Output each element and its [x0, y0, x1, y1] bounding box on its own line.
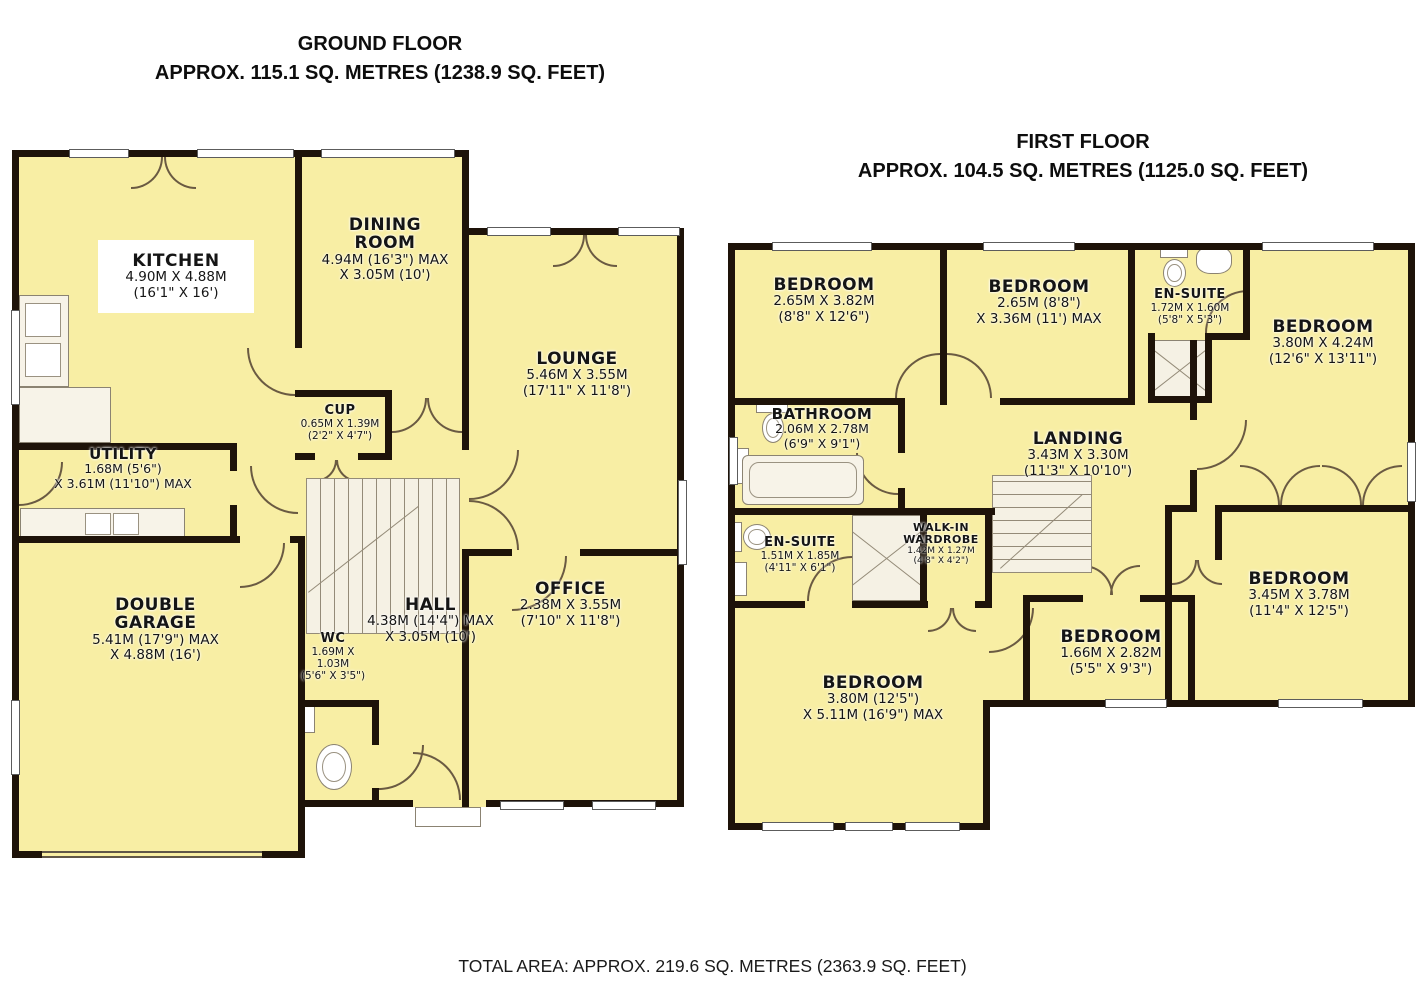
window: [197, 149, 294, 158]
wall: [298, 800, 413, 807]
ground-floor-area: APPROX. 115.1 SQ. METRES (1238.9 SQ. FEE…: [95, 59, 665, 88]
room-dim-metric: 1.68M (5'6"): [84, 462, 161, 476]
room-name: BEDROOM: [822, 674, 923, 692]
room-dim-metric: 4.38M (14'4") MAX: [367, 614, 494, 630]
wall: [12, 536, 240, 543]
utility-counter: [20, 508, 185, 538]
wall: [852, 601, 928, 608]
window: [762, 822, 834, 831]
window: [69, 149, 129, 158]
window: [1278, 699, 1363, 708]
room-dim-imperial: X 3.61M (11'10") MAX: [54, 477, 192, 491]
room-dim-imperial: (4'8" X 4'2"): [913, 556, 968, 566]
room-dim-imperial: (8'8" X 12'6"): [778, 310, 869, 326]
room-name: OFFICE: [535, 580, 606, 598]
wall: [290, 536, 305, 543]
room-label-landing: LANDING 3.43M X 3.30M (11'3" X 10'10"): [983, 430, 1173, 479]
garage-door: [42, 856, 262, 858]
wall: [295, 390, 392, 397]
first-floor-area: APPROX. 104.5 SQ. METRES (1125.0 SQ. FEE…: [798, 157, 1368, 186]
room-dim-imperial: (11'3" X 10'10"): [1024, 464, 1132, 480]
room-label-bedroom-top-middle: BEDROOM 2.65M (8'8") X 3.36M (11') MAX: [948, 278, 1130, 327]
wall: [1148, 396, 1212, 403]
room-label-bedroom-bottom-left: BEDROOM 3.80M (12'5") X 5.11M (16'9") MA…: [768, 674, 978, 723]
room-label-office: OFFICE 2.38M X 3.55M (7'10" X 11'8"): [478, 580, 663, 629]
room-label-cup: CUP 0.65M X 1.39M (2'2" X 4'7"): [300, 404, 380, 442]
room-label-bedroom-bottom-right: BEDROOM 3.45M X 3.78M (11'4" X 12'5"): [1198, 570, 1400, 619]
window: [845, 822, 893, 831]
wall: [728, 243, 735, 830]
wall: [1205, 333, 1212, 403]
room-label-walk-in-wardrobe: WALK-IN WARDROBE 1.42M X 1.27M (4'8" X 4…: [899, 522, 983, 566]
room-label-double-garage: DOUBLE GARAGE 5.41M (17'9") MAX X 4.88M …: [58, 596, 253, 664]
room-label-utility: UTILITY 1.68M (5'6") X 3.61M (11'10") MA…: [28, 446, 218, 491]
kitchen-sink: [19, 295, 69, 387]
wall: [298, 536, 305, 858]
window: [1407, 442, 1416, 502]
kitchen-counter: [19, 387, 111, 443]
room-dim-imperial: (4'11" X 6'1"): [765, 562, 836, 574]
wall: [735, 508, 995, 515]
room-name: WALK-IN WARDROBE: [903, 522, 978, 546]
room-name: EN-SUITE: [764, 536, 836, 550]
wall: [1148, 333, 1155, 403]
room-dim-imperial: (16'1" X 16'): [134, 286, 219, 302]
room-name: UTILITY: [89, 446, 157, 462]
wall: [372, 700, 379, 745]
room-name: WC: [321, 632, 346, 646]
room-dim-imperial: (5'8" X 5'3"): [1158, 314, 1222, 326]
total-area-text: TOTAL AREA: APPROX. 219.6 SQ. METRES (23…: [0, 956, 1425, 977]
room-name: BEDROOM: [1248, 570, 1349, 588]
first-floor-title-block: FIRST FLOOR APPROX. 104.5 SQ. METRES (11…: [798, 128, 1368, 186]
window: [983, 242, 1075, 251]
wall: [230, 443, 237, 471]
room-label-bedroom-bottom-middle: BEDROOM 1.66M X 2.82M (5'5" X 9'3"): [1030, 628, 1192, 677]
window: [487, 227, 551, 236]
room-dim-imperial: X 3.05M (10'): [385, 630, 476, 646]
window: [905, 822, 960, 831]
room-dim-metric: 3.43M X 3.30M: [1027, 448, 1128, 464]
window: [500, 801, 564, 810]
window: [772, 242, 872, 251]
room-dim-metric: 1.42M X 1.27M: [907, 546, 975, 556]
room-name: BEDROOM: [773, 276, 874, 294]
room-name: LOUNGE: [536, 350, 617, 368]
ground-floor-title: GROUND FLOOR: [95, 30, 665, 59]
room-dim-metric: 5.41M (17'9") MAX: [92, 633, 219, 649]
room-name: KITCHEN: [132, 252, 219, 270]
room-dim-imperial: (12'6" X 13'11"): [1269, 352, 1377, 368]
first-floor-title: FIRST FLOOR: [798, 128, 1368, 157]
room-dim-metric: 5.46M X 3.55M: [526, 368, 627, 384]
room-dim-metric: 1.66M X 2.82M: [1060, 646, 1161, 662]
ground-floor-title-block: GROUND FLOOR APPROX. 115.1 SQ. METRES (1…: [95, 30, 665, 88]
ensuite-top-toilet: [1163, 259, 1186, 287]
room-label-dining-room: DINING ROOM 4.94M (16'3") MAX X 3.05M (1…: [300, 216, 470, 284]
wall: [1165, 505, 1197, 512]
wall: [1023, 595, 1083, 602]
room-name: DINING ROOM: [349, 216, 421, 253]
room-dim-imperial: (5'5" X 9'3"): [1070, 662, 1153, 678]
wall: [462, 549, 512, 556]
garage-floor: [12, 536, 305, 858]
wall: [298, 700, 378, 707]
garage-door: [42, 851, 262, 853]
room-label-bedroom-top-left: BEDROOM 2.65M X 3.82M (8'8" X 12'6"): [733, 276, 915, 325]
staircase: [992, 475, 1092, 573]
room-name: LANDING: [1033, 430, 1123, 448]
room-dim-imperial: (5'6" X 3'5"): [301, 670, 365, 682]
room-dim-metric: 2.06M X 2.78M: [775, 422, 869, 436]
wall: [1000, 398, 1135, 405]
room-label-lounge: LOUNGE 5.46M X 3.55M (17'11" X 11'8"): [482, 350, 672, 399]
wall: [1023, 595, 1030, 707]
wall: [385, 390, 392, 460]
window: [729, 437, 738, 485]
room-dim-imperial: (6'9" X 9'1"): [784, 437, 860, 451]
wall: [983, 700, 990, 830]
room-name: BEDROOM: [1272, 318, 1373, 336]
wall: [940, 243, 947, 405]
wc-toilet: [316, 744, 352, 790]
room-dim-metric: 3.80M (12'5"): [827, 692, 919, 708]
window: [592, 801, 656, 810]
room-dim-metric: 1.69M X 1.03M: [298, 646, 368, 670]
wall: [735, 398, 900, 405]
room-name: EN-SUITE: [1154, 288, 1226, 302]
room-name: CUP: [324, 404, 355, 418]
room-dim-metric: 3.80M X 4.24M: [1272, 336, 1373, 352]
room-dim-imperial: (7'10" X 11'8"): [521, 614, 621, 630]
room-dim-imperial: X 4.88M (16'): [110, 648, 201, 664]
room-dim-metric: 1.51M X 1.85M: [761, 550, 840, 562]
room-dim-imperial: X 5.11M (16'9") MAX: [803, 708, 943, 724]
room-label-kitchen: KITCHEN 4.90M X 4.88M (16'1" X 16'): [98, 240, 254, 313]
room-dim-imperial: (11'4" X 12'5"): [1249, 604, 1349, 620]
room-dim-metric: 2.65M (8'8"): [997, 296, 1081, 312]
wall: [1190, 340, 1197, 420]
wall: [262, 851, 305, 858]
wall: [1215, 505, 1222, 560]
wall: [462, 550, 469, 807]
room-dim-metric: 2.38M X 3.55M: [520, 598, 621, 614]
wall: [358, 453, 392, 460]
window: [321, 149, 455, 158]
room-name: BATHROOM: [772, 406, 873, 422]
room-dim-imperial: (17'11" X 11'8"): [523, 384, 631, 400]
wall: [735, 601, 805, 608]
window: [11, 700, 20, 775]
room-name: HALL: [405, 596, 456, 614]
window: [1105, 699, 1167, 708]
room-name: BEDROOM: [988, 278, 1089, 296]
room-label-en-suite-top: EN-SUITE 1.72M X 1.60M (5'8" X 5'3"): [1138, 288, 1242, 326]
wall: [295, 453, 315, 460]
porch-step: [415, 807, 481, 827]
room-label-bedroom-right: BEDROOM 3.80M X 4.24M (12'6" X 13'11"): [1228, 318, 1418, 367]
wall: [985, 508, 992, 608]
wall: [580, 549, 684, 556]
window: [618, 227, 680, 236]
wall: [1222, 505, 1415, 512]
room-dim-metric: 1.72M X 1.60M: [1151, 302, 1230, 314]
window: [1262, 242, 1374, 251]
room-dim-imperial: X 3.05M (10'): [340, 268, 431, 284]
room-dim-metric: 2.65M X 3.82M: [773, 294, 874, 310]
room-dim-metric: 4.94M (16'3") MAX: [322, 253, 449, 269]
floor-plan: GROUND FLOOR APPROX. 115.1 SQ. METRES (1…: [0, 0, 1425, 985]
room-label-bathroom: BATHROOM 2.06M X 2.78M (6'9" X 9'1"): [742, 406, 902, 451]
bath-tub: [742, 455, 864, 505]
wall: [372, 788, 379, 807]
ensuite-top-shower: [1152, 340, 1208, 400]
room-dim-imperial: X 3.36M (11') MAX: [976, 312, 1101, 328]
room-dim-metric: 0.65M X 1.39M: [301, 418, 380, 430]
room-dim-metric: 4.90M X 4.88M: [125, 270, 226, 286]
room-dim-imperial: (2'2" X 4'7"): [308, 430, 372, 442]
window: [678, 480, 687, 565]
ensuite-top-sink: [1196, 246, 1232, 274]
room-label-en-suite-left: EN-SUITE 1.51M X 1.85M (4'11" X 6'1"): [736, 536, 864, 574]
window: [11, 310, 20, 405]
room-name: BEDROOM: [1060, 628, 1161, 646]
room-name: DOUBLE GARAGE: [115, 596, 197, 633]
room-dim-metric: 3.45M X 3.78M: [1248, 588, 1349, 604]
